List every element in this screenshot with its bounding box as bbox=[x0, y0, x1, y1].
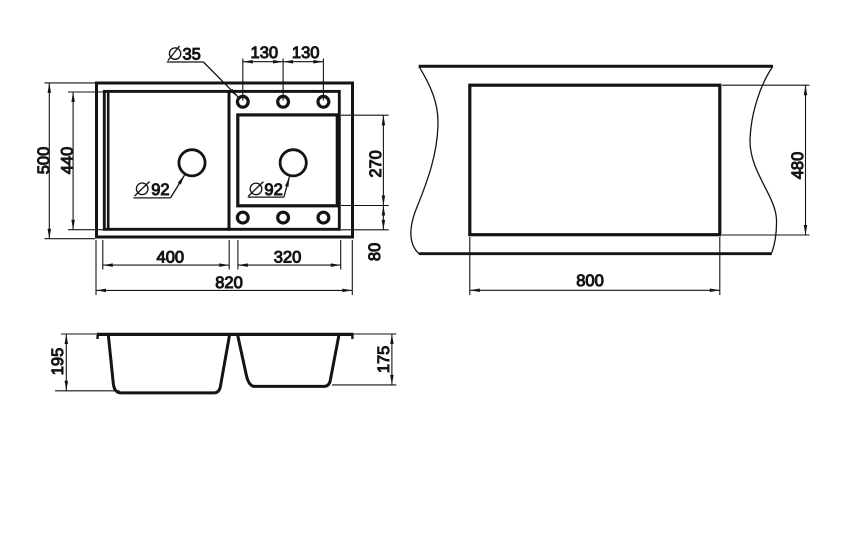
svg-text:800: 800 bbox=[576, 272, 604, 290]
svg-text:480: 480 bbox=[789, 152, 807, 180]
svg-text:270: 270 bbox=[367, 150, 385, 178]
svg-text:130: 130 bbox=[251, 44, 279, 62]
svg-text:320: 320 bbox=[274, 249, 302, 267]
svg-text:80: 80 bbox=[366, 243, 384, 261]
svg-text:130: 130 bbox=[292, 44, 320, 62]
svg-text:400: 400 bbox=[157, 249, 185, 267]
svg-text:440: 440 bbox=[58, 147, 76, 175]
svg-text:92: 92 bbox=[151, 181, 169, 199]
svg-text:195: 195 bbox=[49, 348, 67, 376]
svg-text:500: 500 bbox=[35, 147, 53, 175]
svg-text:92: 92 bbox=[264, 181, 282, 199]
svg-text:175: 175 bbox=[375, 346, 393, 374]
svg-text:820: 820 bbox=[215, 274, 243, 292]
svg-text:35: 35 bbox=[183, 45, 201, 63]
